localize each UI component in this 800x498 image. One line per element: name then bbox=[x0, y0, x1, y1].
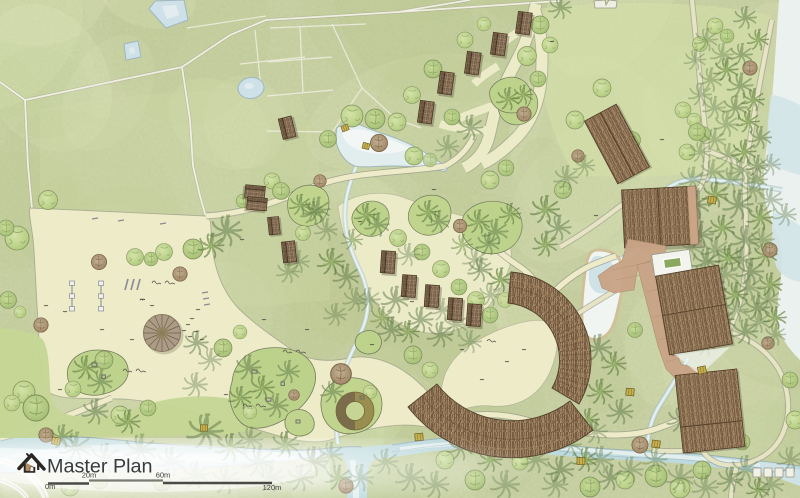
svg-text:0m: 0m bbox=[45, 482, 55, 491]
svg-text:Master Plan: Master Plan bbox=[47, 456, 153, 478]
svg-text:60m: 60m bbox=[156, 471, 171, 480]
svg-text:20m: 20m bbox=[82, 471, 97, 480]
svg-text:120m: 120m bbox=[263, 483, 282, 492]
